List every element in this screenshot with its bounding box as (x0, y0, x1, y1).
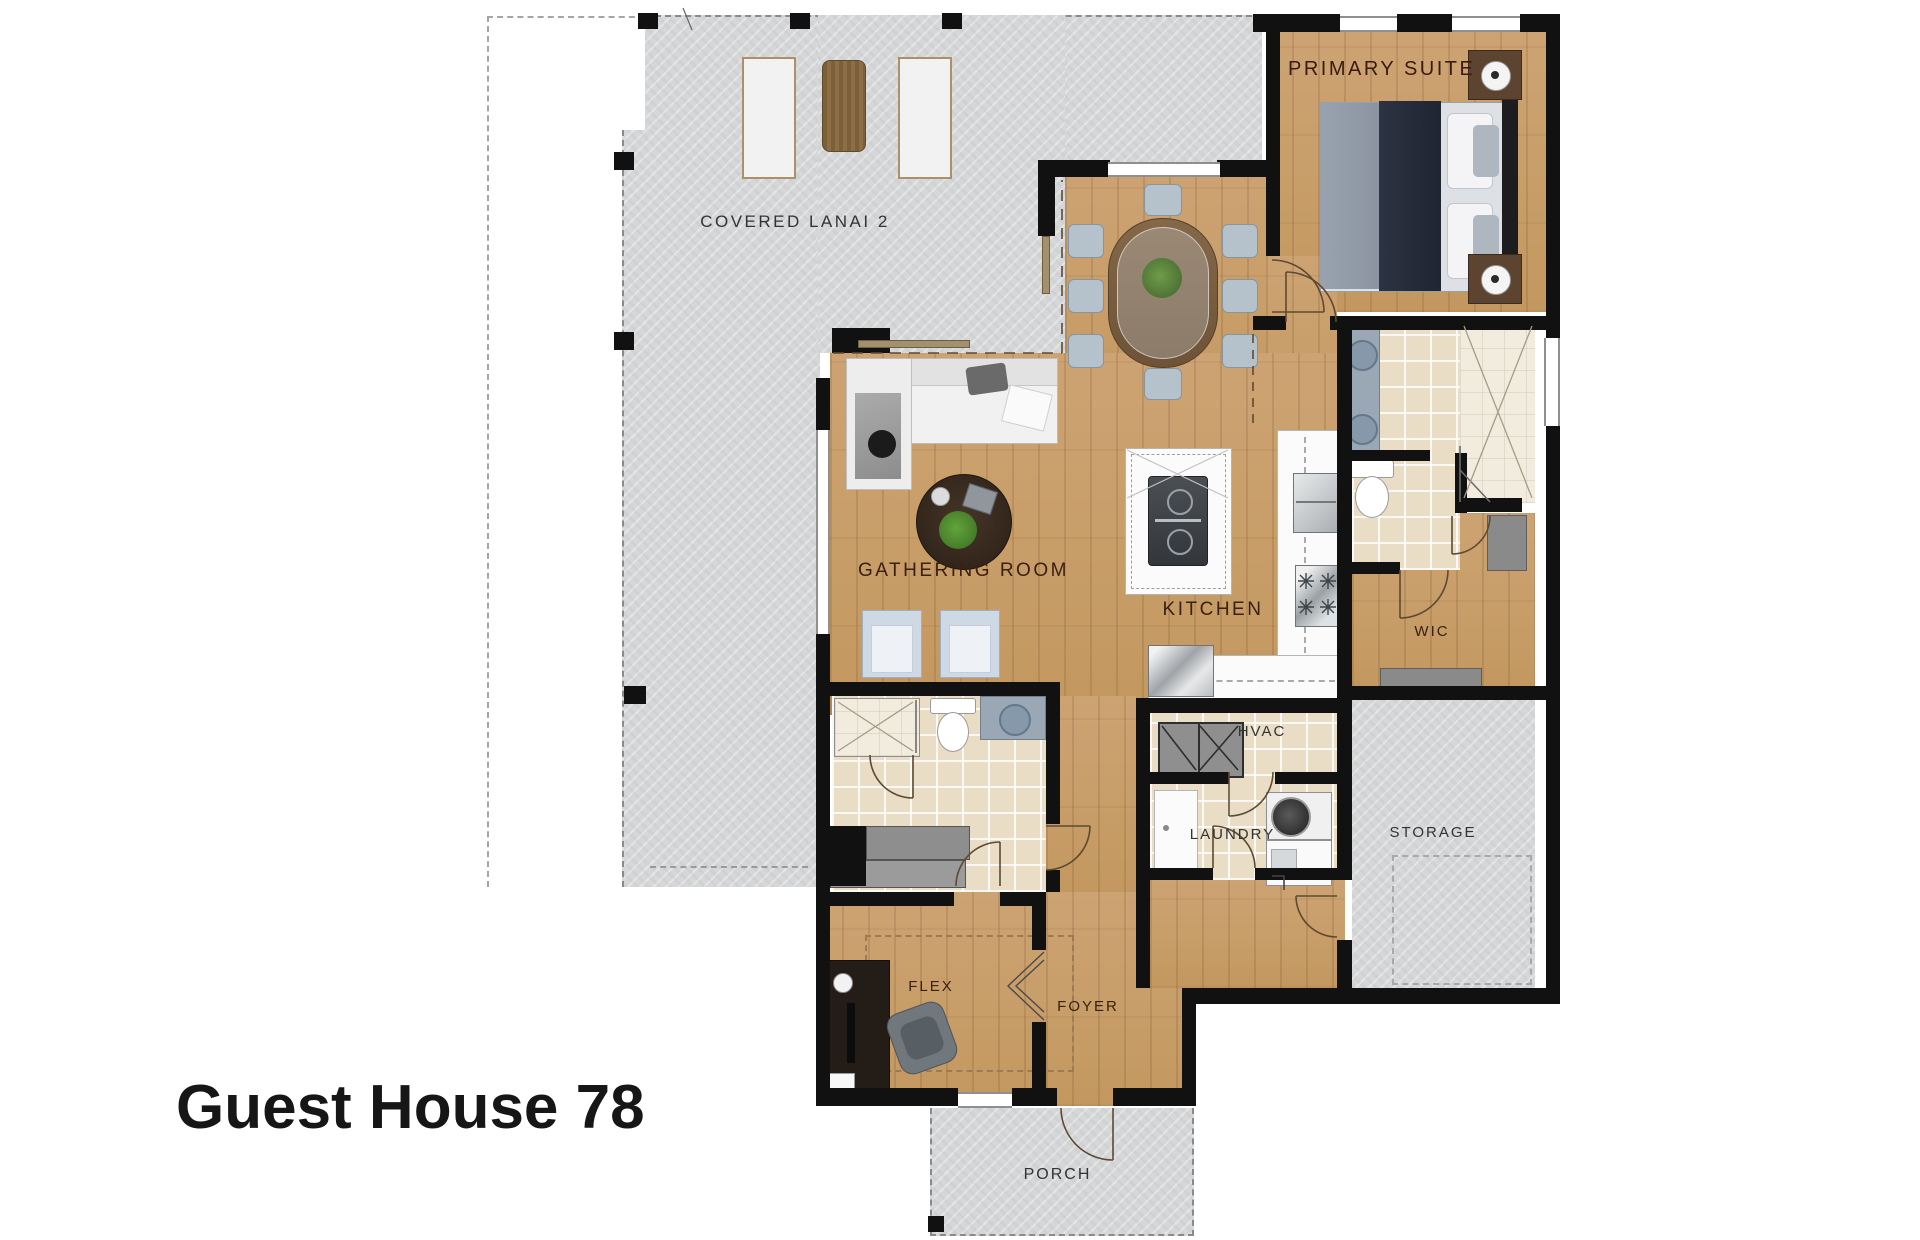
wall (1337, 686, 1560, 700)
floor-plan: COVERED LANAI 2 (0, 0, 1920, 1240)
lanai-post (614, 152, 634, 170)
room-label-storage: STORAGE (1383, 824, 1483, 841)
wall (1032, 1022, 1046, 1090)
sofa-pillow (1001, 384, 1053, 432)
plant-icon (1142, 258, 1182, 298)
storage-dashed-area (1392, 855, 1532, 985)
armchair-seat (871, 625, 913, 673)
wall (1337, 316, 1352, 715)
lanai-post (614, 332, 634, 350)
wall (1342, 562, 1400, 574)
armchair-seat (949, 625, 991, 673)
monitor-icon (847, 1003, 855, 1063)
wall (1182, 988, 1196, 1106)
dining-chair-icon (1068, 334, 1104, 368)
room-label-foyer: FOYER (1048, 998, 1128, 1015)
outdoor-sofa-icon (898, 57, 952, 179)
roofline-dashed (487, 16, 489, 887)
laundry-sink-dot (1163, 825, 1169, 831)
wall (1038, 160, 1055, 236)
refrigerator-icon (1293, 473, 1341, 533)
window (1108, 162, 1220, 177)
wall (1136, 698, 1150, 988)
lanai-post (624, 686, 646, 704)
page-title: Guest House 78 (176, 1072, 645, 1143)
window (958, 1092, 1012, 1108)
coffee-table-icon (916, 474, 1012, 570)
window (1452, 16, 1520, 32)
outdoor-sofa-icon (742, 57, 796, 179)
lanai-post (790, 13, 810, 29)
window (1340, 16, 1397, 32)
wall (1253, 14, 1340, 32)
dining-chair-icon (1144, 368, 1182, 400)
toilet-bowl (1355, 476, 1389, 518)
bed-pillow (1473, 125, 1499, 177)
room-label-primary-suite: PRIMARY SUITE (1288, 58, 1468, 81)
sliding-door-panel (858, 340, 970, 348)
sofa-pillow (965, 362, 1009, 395)
vanity-icon (980, 696, 1046, 740)
armchair-icon (862, 610, 922, 678)
wall (1012, 1088, 1057, 1106)
lanai-post (942, 13, 962, 29)
window (1544, 338, 1560, 426)
toilet-bowl (937, 712, 969, 752)
room-label-laundry: LAUNDRY (1180, 826, 1285, 843)
armchair-icon (940, 610, 1000, 678)
room-label-hvac: HVAC (1212, 723, 1312, 740)
wall (816, 378, 830, 432)
room-label-flex: FLEX (896, 978, 966, 995)
wall (816, 632, 830, 696)
dishwasher-icon (1148, 645, 1214, 697)
dining-chair-icon (1222, 334, 1258, 368)
dining-chair-icon (1068, 279, 1104, 313)
range-burner (1167, 489, 1193, 515)
wall (1337, 940, 1352, 988)
bowl-icon (931, 487, 950, 506)
wall (1275, 772, 1345, 784)
sink-icon (999, 704, 1031, 736)
nightstand-icon (1468, 254, 1522, 304)
office-chair-seat (898, 1014, 947, 1063)
wall (1460, 498, 1522, 512)
sofa-chaise (846, 358, 912, 490)
wall (818, 682, 1048, 696)
toilet-icon (1348, 460, 1394, 518)
wall (1255, 868, 1345, 880)
room-label-wic: WIC (1382, 623, 1482, 640)
desk-lamp-icon (833, 973, 853, 993)
bed-throw (1379, 101, 1441, 291)
dresser-icon (1487, 515, 1527, 571)
wall (1046, 682, 1060, 824)
fridge-divider (1296, 501, 1336, 503)
lanai-floor-left (622, 130, 820, 887)
wall (1150, 772, 1229, 784)
nightstand-icon (1468, 50, 1522, 100)
dining-chair-icon (1222, 224, 1258, 258)
plant-icon (939, 511, 977, 549)
book-icon (962, 483, 998, 515)
side-table-icon (868, 430, 896, 458)
wall (816, 892, 954, 906)
lanai-post (638, 13, 658, 29)
room-label-porch: PORCH (1010, 1166, 1105, 1184)
wall (1342, 450, 1430, 461)
wall (1266, 32, 1280, 256)
lanai-edge-dashed (650, 866, 808, 868)
corridor-floor (1150, 880, 1345, 988)
range-handle (1155, 519, 1201, 522)
wall (1337, 700, 1352, 880)
wall (1182, 988, 1560, 1004)
room-label-kitchen: KITCHEN (1128, 599, 1298, 621)
room-label-gathering-room: GATHERING ROOM (858, 560, 1058, 582)
wall (1330, 316, 1546, 330)
wall (816, 1088, 958, 1106)
wall (1150, 868, 1213, 880)
primary-shower-floor (1460, 322, 1535, 503)
dining-chair-icon (1068, 224, 1104, 258)
shower-icon (834, 698, 920, 757)
room-label-covered-lanai: COVERED LANAI 2 (645, 212, 945, 232)
wall (1546, 426, 1560, 1004)
porch-post (928, 1216, 944, 1232)
wall (1253, 316, 1286, 330)
roofline-dashed-top (487, 16, 645, 18)
closet-shelf-icon (866, 826, 970, 860)
dining-chair-icon (1222, 279, 1258, 313)
wall (1397, 14, 1452, 32)
wall (1546, 14, 1560, 338)
cooktop-icon (1295, 565, 1341, 627)
sliding-door-panel (1042, 236, 1050, 294)
lamp-center (1491, 275, 1499, 283)
range-burner (1167, 529, 1193, 555)
wall (1217, 160, 1266, 177)
wall (1046, 870, 1060, 892)
toilet-icon (928, 698, 976, 756)
lamp-center (1491, 71, 1499, 79)
range-icon (1148, 476, 1208, 566)
window (816, 430, 830, 634)
wall (1032, 892, 1046, 950)
wall (1136, 698, 1352, 713)
hvac-unit-icon (1158, 722, 1202, 778)
outdoor-table-icon (822, 60, 866, 152)
dining-chair-icon (1144, 184, 1182, 216)
